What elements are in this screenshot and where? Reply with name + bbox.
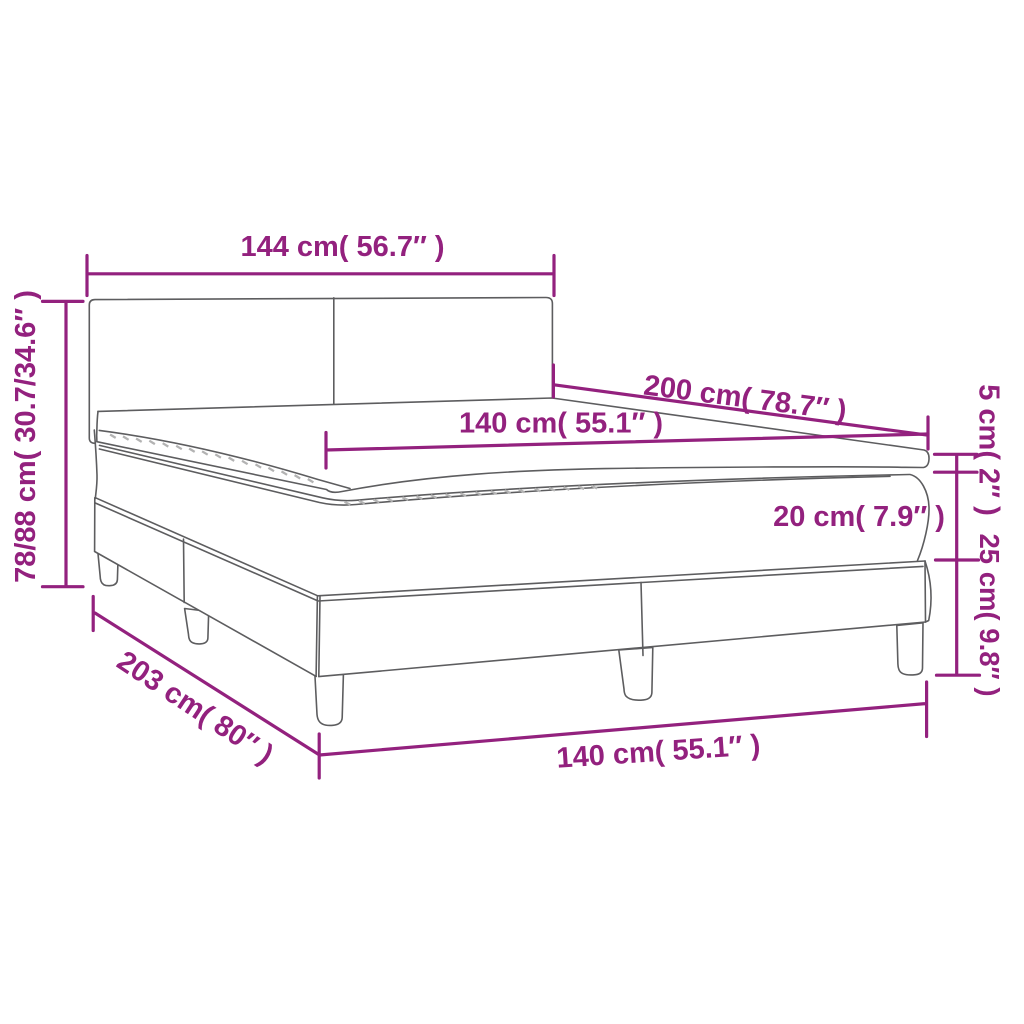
svg-text:78/88 cm( 30.7/34.6″ ): 78/88 cm( 30.7/34.6″ ) [10, 290, 42, 583]
svg-text:144 cm( 56.7″ ): 144 cm( 56.7″ ) [240, 231, 444, 263]
svg-text:140 cm( 55.1″ ): 140 cm( 55.1″ ) [459, 408, 663, 440]
svg-text:5 cm( 2″ ): 5 cm( 2″ ) [973, 384, 1005, 516]
svg-text:25 cm( 9.8″ ): 25 cm( 9.8″ ) [974, 534, 1005, 697]
svg-text:20 cm( 7.9″ ): 20 cm( 7.9″ ) [773, 501, 945, 533]
